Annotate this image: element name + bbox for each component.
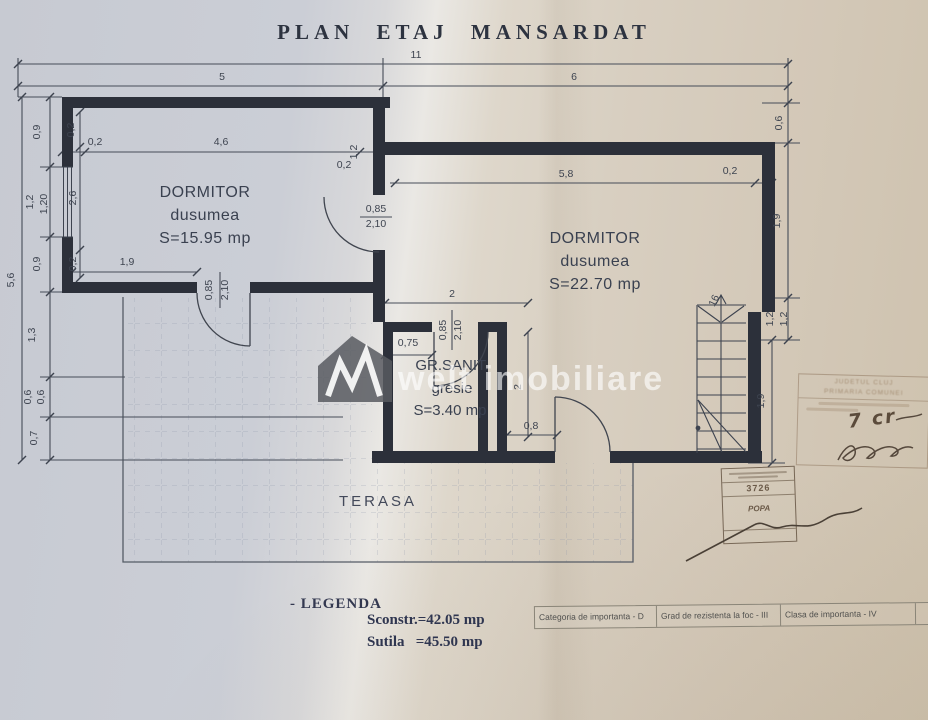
dimension-label: 5,6 — [5, 273, 17, 288]
legend-usable-area: Sutila =45.50 mp — [367, 634, 483, 651]
dimension-label: 2,6 — [67, 191, 79, 206]
room-label-bedroom1-name: DORMITOR — [160, 184, 251, 201]
dimension-label: 0,9 — [31, 125, 43, 140]
dimension-label: 1,2 — [348, 145, 360, 160]
legend-built-area: Sconstr.=42.05 mp — [367, 612, 485, 629]
room-label-terrace: TERASA — [339, 493, 417, 510]
dimension-label: 4,6 — [214, 136, 229, 148]
dimension-label: 1,2 — [24, 195, 36, 210]
room-label-bathroom-area: S=3.40 mp — [414, 402, 487, 419]
table-cell-importance-class: Clasa de importanta - IV — [781, 603, 916, 625]
room-label-bedroom1-area: S=15.95 mp — [159, 230, 251, 247]
dimension-label: 0,2 — [723, 165, 738, 177]
architect-stamp: 3726 POPA — [721, 466, 798, 545]
table-cell-category: Categoria de importanta - D — [535, 606, 657, 628]
staircase — [696, 295, 746, 453]
illegible-text-bar — [818, 402, 909, 407]
dimension-label: 0,2 — [67, 257, 79, 272]
dimension-label: 5 — [219, 71, 225, 83]
room-label-bedroom2-name: DORMITOR — [550, 230, 641, 247]
dimension-label: 0,85 — [437, 320, 449, 341]
dimension-label: 0,7 — [28, 431, 40, 446]
dimension-label: 2 — [449, 288, 455, 300]
room-label-bedroom2-finish: dusumea — [560, 253, 629, 270]
dimension-label: 0,75 — [398, 337, 419, 349]
dimension-label: 0,2 — [337, 159, 352, 171]
illegible-text-bar — [738, 475, 778, 479]
architect-stamp-signature: POPA — [723, 494, 796, 530]
dimension-label: 0,2 — [88, 136, 103, 148]
scanned-floor-plan-page: PLAN ETAJ MANSARDAT — [0, 0, 928, 720]
dimension-label: 1,9 — [120, 256, 135, 268]
watermark-text: welt imobiliare — [397, 360, 664, 398]
dimension-label: 0,2 — [65, 123, 77, 138]
dimension-label: 5,8 — [559, 168, 574, 180]
importance-table: Categoria de importanta - D Grad de rezi… — [534, 602, 928, 629]
dimension-label: 16 — [706, 293, 722, 309]
table-cell-empty — [916, 603, 928, 624]
dimension-label: 1,2 — [778, 312, 790, 327]
illegible-text-bar — [729, 471, 787, 476]
room-label-bedroom1-finish: dusumea — [170, 207, 239, 224]
dimension-label: 2,10 — [452, 320, 464, 341]
legend-heading: - LEGENDA — [290, 596, 382, 613]
dimension-label: 0,85 — [366, 203, 387, 215]
dimension-label: 0,6 — [773, 116, 785, 131]
terrace-tile-grid — [124, 298, 633, 562]
illegible-text-bar — [724, 531, 776, 533]
dimension-label: 1,9 — [771, 214, 783, 229]
dimension-label: 1,9 — [755, 394, 767, 409]
dimension-label: 0,85 — [203, 280, 215, 301]
dimension-label: 11 — [411, 49, 422, 61]
room-label-bedroom2-area: S=22.70 mp — [549, 276, 641, 293]
dimension-label: 1,3 — [26, 328, 38, 343]
dimension-label: 0,8 — [524, 420, 539, 432]
official-stamp-region: JUDETUL CLUJ — [799, 377, 928, 387]
dimension-label: 1,2 — [764, 312, 776, 327]
dimension-label: 0,6 — [35, 390, 47, 405]
door-arc-bedroom2 — [555, 397, 610, 452]
dimension-label: 2,10 — [219, 280, 231, 301]
dimension-label: 6 — [571, 71, 577, 83]
dimension-label: 0,9 — [31, 257, 43, 272]
dimension-label: 1,20 — [38, 194, 50, 215]
official-stamp-authority: PRIMARIA COMUNEI — [799, 387, 928, 397]
dimension-label: 0,6 — [22, 390, 34, 405]
dimension-label: 2,10 — [366, 218, 387, 230]
table-cell-fire-resistance: Grad de rezistenta la foc - III — [657, 605, 781, 627]
